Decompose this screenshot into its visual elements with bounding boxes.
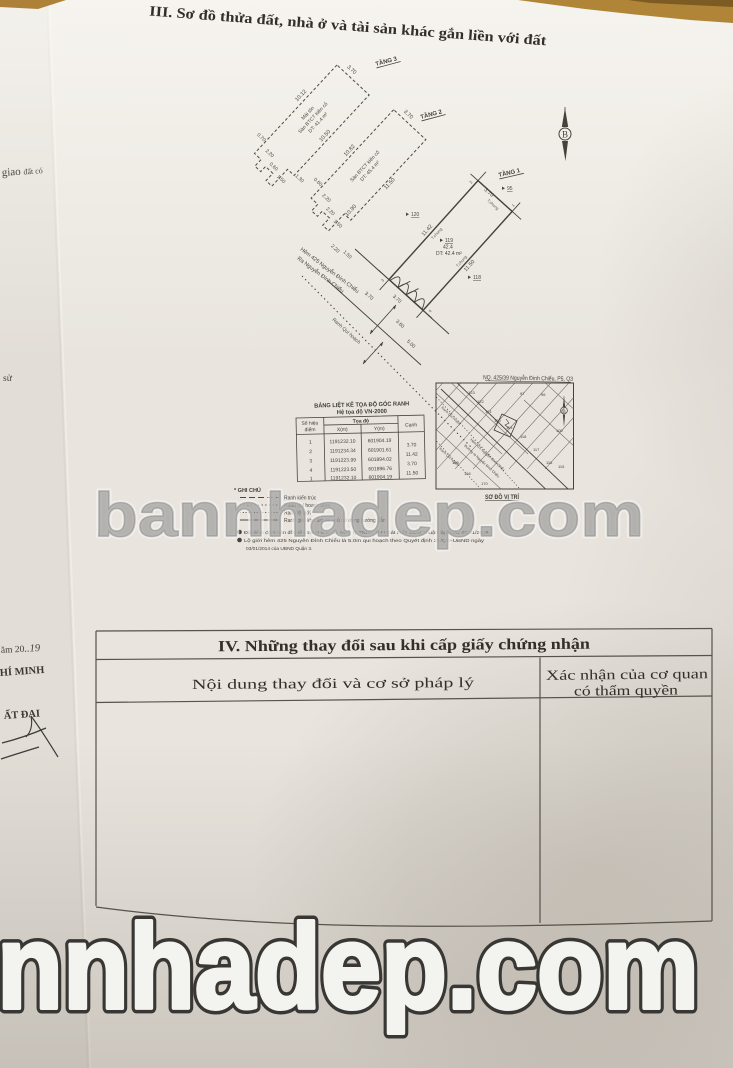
svg-text:120: 120 <box>411 212 420 218</box>
svg-text:B: B <box>562 130 568 140</box>
svg-text:2: 2 <box>309 449 312 455</box>
svg-text:601904.19: 601904.19 <box>368 438 392 445</box>
svg-text:IV. Những thay đổi sau khi cấp: IV. Những thay đổi sau khi cấp giấy chứn… <box>218 636 591 656</box>
svg-text:122: 122 <box>477 399 484 404</box>
svg-text:96: 96 <box>541 392 546 397</box>
svg-text:97: 97 <box>520 391 525 396</box>
svg-text:Tọa độ: Tọa độ <box>353 418 370 424</box>
svg-text:11.50: 11.50 <box>406 470 418 476</box>
svg-text:118: 118 <box>520 434 527 439</box>
svg-text:601904.19: 601904.19 <box>368 474 392 481</box>
svg-text:Xác nhận của cơ quan: Xác nhận của cơ quan <box>546 667 708 684</box>
svg-text:121: 121 <box>485 409 492 414</box>
svg-text:95: 95 <box>507 186 513 192</box>
svg-text:X(m): X(m) <box>337 427 348 433</box>
svg-text:Hệ tọa độ VN-2000: Hệ tọa độ VN-2000 <box>337 409 388 416</box>
svg-text:3: 3 <box>309 458 312 464</box>
svg-text:601894.02: 601894.02 <box>368 457 392 464</box>
svg-text:42.4: 42.4 <box>443 245 453 251</box>
svg-text:119: 119 <box>506 425 513 430</box>
svg-text:DT: 42.4 m²: DT: 42.4 m² <box>436 251 462 257</box>
svg-text:có thẩm quyền: có thẩm quyền <box>574 683 678 699</box>
svg-text:11.42: 11.42 <box>406 452 418 458</box>
svg-text:điểm: điểm <box>305 426 316 433</box>
svg-text:123: 123 <box>468 390 475 395</box>
svg-text:1: 1 <box>309 440 312 446</box>
svg-text:117: 117 <box>533 447 540 452</box>
svg-text:601901.61: 601901.61 <box>368 447 392 454</box>
svg-text:166: 166 <box>464 471 471 476</box>
svg-text:118: 118 <box>473 275 481 281</box>
svg-text:1191223.50: 1191223.50 <box>330 467 356 474</box>
svg-text:Y(m): Y(m) <box>374 426 385 432</box>
svg-text:3.70: 3.70 <box>407 461 417 467</box>
svg-text:1191232.10: 1191232.10 <box>329 439 355 446</box>
svg-text:Nội dung thay đổi và cơ sở phá: Nội dung thay đổi và cơ sở pháp lý <box>192 676 474 693</box>
svg-text:3.70: 3.70 <box>407 442 417 448</box>
svg-text:120: 120 <box>494 418 501 423</box>
svg-text:sử: sử <box>3 374 13 384</box>
svg-text:ăm 20..19: ăm 20..19 <box>1 643 42 656</box>
svg-text:601896.76: 601896.76 <box>368 466 392 473</box>
svg-text:116: 116 <box>546 460 553 465</box>
svg-text:4: 4 <box>310 468 313 474</box>
svg-text:100: 100 <box>556 428 563 433</box>
svg-text:119: 119 <box>445 238 453 244</box>
svg-text:Cạnh: Cạnh <box>405 422 417 428</box>
svg-text:B: B <box>562 409 566 415</box>
svg-text:1191234.34: 1191234.34 <box>330 448 356 455</box>
svg-text:1191223.99: 1191223.99 <box>330 457 356 464</box>
svg-text:annhadep.com: annhadep.com <box>0 900 699 1034</box>
svg-text:115: 115 <box>558 464 565 469</box>
svg-text:bannhadep.com: bannhadep.com <box>94 481 644 550</box>
svg-text:Số hiệu: Số hiệu <box>301 420 318 426</box>
